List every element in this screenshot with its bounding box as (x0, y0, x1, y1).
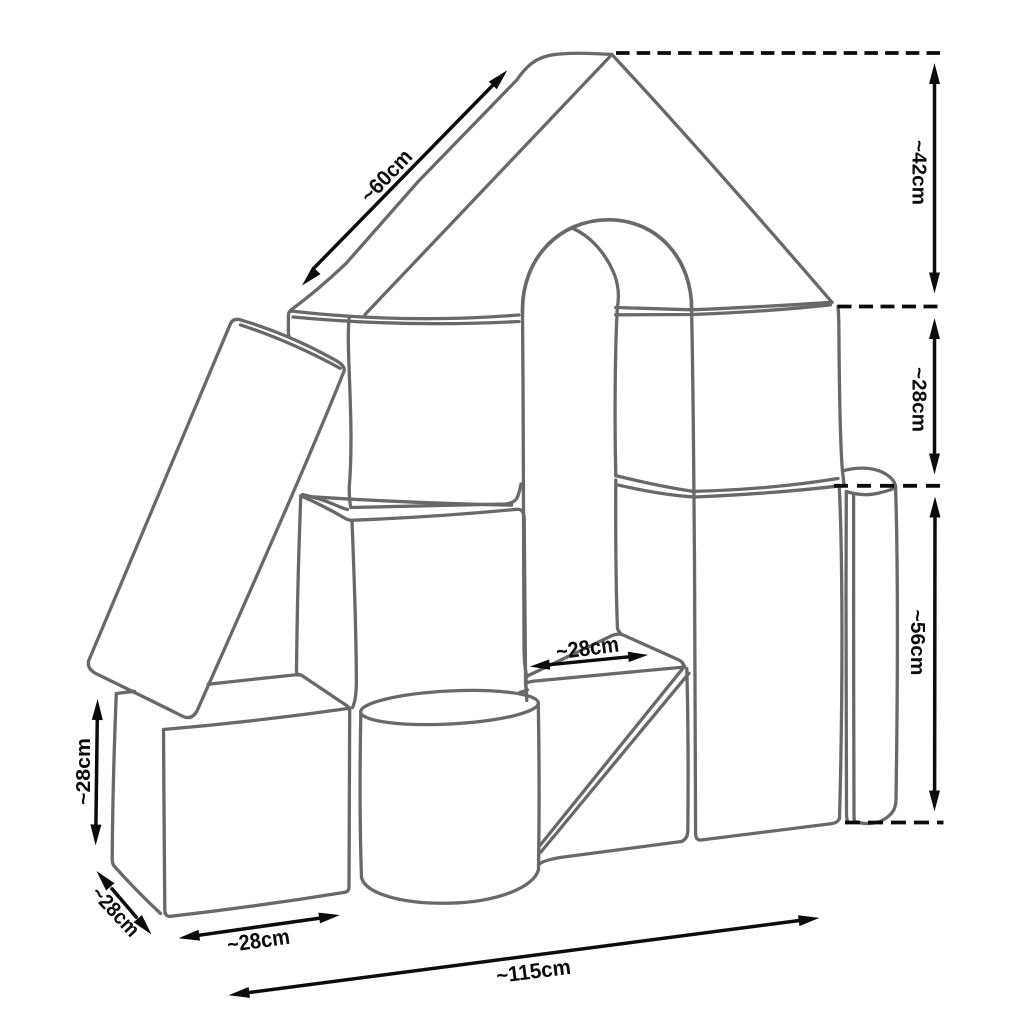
svg-text:~42cm: ~42cm (908, 140, 930, 205)
svg-text:~28cm: ~28cm (908, 367, 930, 432)
svg-text:~28cm: ~28cm (73, 738, 95, 805)
svg-text:~56cm: ~56cm (906, 610, 928, 676)
